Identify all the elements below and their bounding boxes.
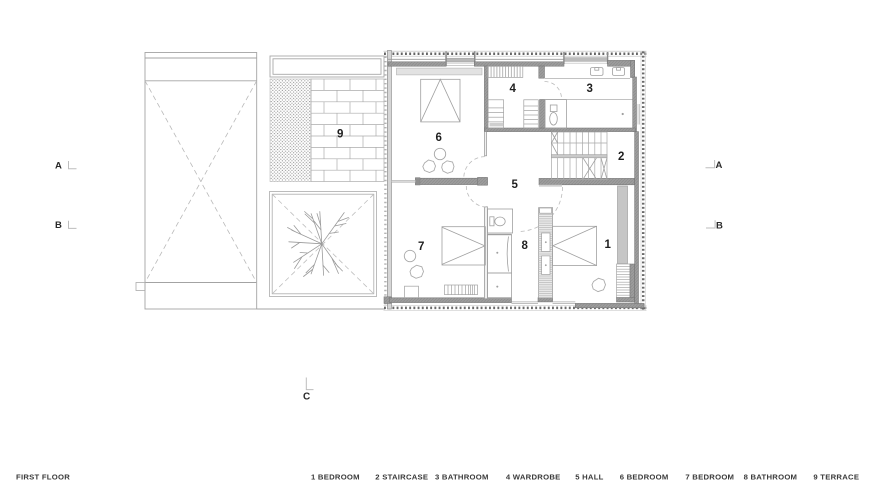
svg-text:4 WARDROBE: 4 WARDROBE: [506, 472, 561, 481]
svg-text:7: 7: [418, 241, 424, 253]
svg-text:A: A: [55, 161, 62, 172]
svg-text:9: 9: [337, 129, 343, 141]
svg-text:3: 3: [587, 83, 593, 95]
svg-text:B: B: [55, 220, 62, 231]
svg-text:7 BEDROOM: 7 BEDROOM: [685, 472, 734, 481]
svg-text:8: 8: [522, 240, 529, 252]
svg-text:1: 1: [605, 239, 612, 251]
svg-text:1 BEDROOM: 1 BEDROOM: [311, 472, 360, 481]
svg-text:B: B: [716, 220, 723, 231]
svg-text:6 BEDROOM: 6 BEDROOM: [620, 472, 669, 481]
svg-text:9 TERRACE: 9 TERRACE: [813, 472, 859, 481]
svg-text:5 HALL: 5 HALL: [575, 472, 603, 481]
svg-text:6: 6: [436, 132, 442, 144]
svg-text:8 BATHROOM: 8 BATHROOM: [744, 472, 798, 481]
svg-text:2: 2: [618, 151, 624, 163]
svg-text:C: C: [303, 392, 310, 403]
svg-text:4: 4: [510, 83, 517, 95]
svg-text:3 BATHROOM: 3 BATHROOM: [435, 472, 489, 481]
svg-text:A: A: [716, 160, 723, 171]
svg-text:5: 5: [512, 179, 519, 191]
svg-text:2 STAIRCASE: 2 STAIRCASE: [375, 472, 428, 481]
svg-text:FIRST FLOOR: FIRST FLOOR: [16, 472, 70, 481]
